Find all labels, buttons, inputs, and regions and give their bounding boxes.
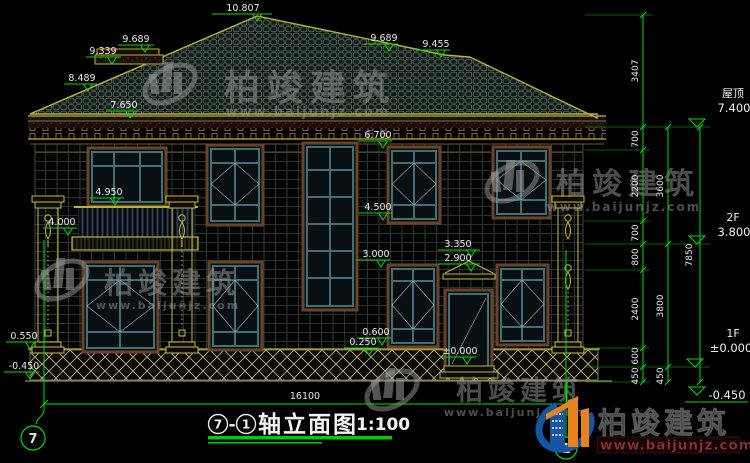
title-underline-thin [208, 442, 322, 444]
dim-m0250: 0.250 [349, 337, 376, 348]
logo-site-text: www.baijunjz.com [600, 438, 750, 454]
chain-450b: 450 [656, 367, 666, 384]
dim-l9339: 9.339 [89, 46, 116, 57]
cad-elevation-screenshot: 柏竣建筑 www.baijunjz.com 柏竣建筑 www.baijunjz.… [0, 0, 750, 463]
window-2f-right [388, 147, 440, 223]
door-step-upper [444, 366, 494, 372]
watermark-brand: 柏竣建筑 [104, 266, 240, 300]
label-roof-name: 屋顶 [722, 87, 744, 100]
watermark-site: www.baijunjz.com [547, 200, 702, 214]
dim-l0550: 0.550 [10, 331, 37, 342]
chain-700a: 700 [631, 130, 641, 147]
label-roof-val: 7.400 [718, 101, 750, 115]
dim-l7650: 7.650 [110, 100, 137, 111]
chain-450a: 450 [631, 367, 641, 384]
dim-m4500: 4.500 [364, 202, 391, 213]
window-2f-left [207, 145, 263, 225]
chain-7850: 7850 [685, 243, 695, 266]
chain-3800: 3800 [656, 294, 666, 317]
elevation-drawing-canvas: 柏竣建筑 www.baijunjz.com 柏竣建筑 www.baijunjz.… [0, 0, 750, 463]
balcony [72, 207, 198, 250]
chain-3407: 3407 [631, 60, 641, 83]
dim-l4950: 4.950 [95, 187, 122, 198]
chain-600: 600 [631, 347, 641, 364]
logo-brand-text: 柏竣建筑 [598, 406, 730, 440]
dim-l8489: 8.489 [68, 73, 95, 84]
title-axis-right: 1 [242, 418, 250, 432]
window-stairs-tall [303, 143, 357, 310]
watermark-site: www.baijunjz.com [96, 299, 240, 312]
title-axis-left: 7 [214, 418, 222, 432]
chain-800: 800 [631, 248, 641, 265]
title-dash: - [228, 415, 235, 435]
title-block: 7 - 1 轴立面图 1:100 [208, 411, 410, 444]
window-1f-right [388, 265, 438, 347]
dim-r9455: 9.455 [422, 39, 449, 50]
dim-r9689: 9.689 [370, 33, 397, 44]
balcony-slab [72, 237, 198, 250]
dim-m3350: 3.350 [444, 239, 471, 250]
dim-peak: 10.807 [226, 3, 259, 14]
label-2f-name: 2F [726, 211, 739, 224]
chain-3600: 3600 [656, 174, 666, 197]
dim-l4000: 4.000 [48, 217, 75, 228]
watermark-site: www.baijunjz.com [226, 105, 391, 120]
label-grade-val: -0.450 [708, 388, 745, 402]
label-2f-val: 3.800 [718, 225, 750, 239]
watermark-brand: 柏竣建筑 [456, 375, 584, 407]
cornice [28, 116, 606, 144]
dim-m0000: ±0.000 [442, 346, 477, 357]
dim-total-width: 16100 [290, 391, 320, 402]
chain-2400: 2400 [631, 297, 641, 320]
dim-lm0450: -0.450 [9, 361, 40, 372]
dim-m6700: 6.700 [364, 130, 391, 141]
drawing-scale: 1:100 [356, 415, 410, 435]
label-1f-name: 1F [726, 327, 739, 340]
balcony-railing [78, 208, 194, 237]
dim-l9689: 9.689 [122, 34, 149, 45]
title-underline-thick [208, 436, 392, 440]
watermark-brand: 柏竣建筑 [556, 167, 700, 202]
watermark-brand: 柏竣建筑 [224, 68, 396, 109]
chain-700b: 700 [631, 224, 641, 241]
label-1f-val: ±0.000 [710, 341, 750, 355]
dim-m3000: 3.000 [362, 249, 389, 260]
axis-bubble-7: 7 [28, 432, 37, 447]
chain-2200: 2200 [631, 174, 641, 197]
drawing-title: 轴立面图 [258, 411, 358, 438]
window-1f-far-right [497, 265, 548, 345]
dim-m2900: 2.900 [444, 253, 471, 264]
